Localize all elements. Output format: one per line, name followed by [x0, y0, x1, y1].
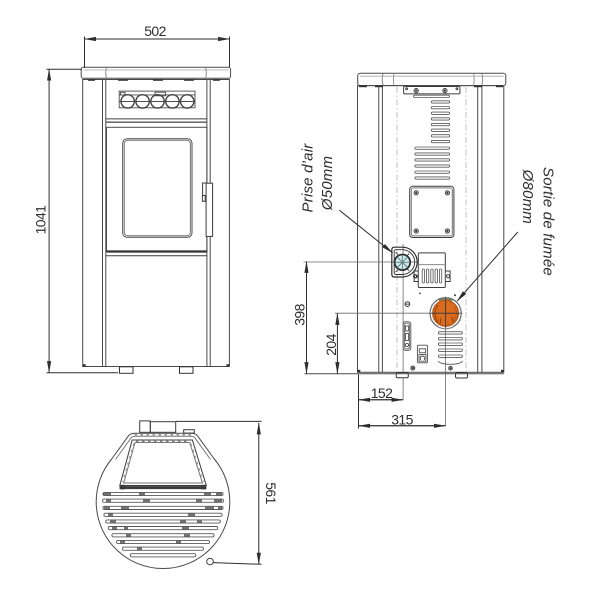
svg-text:204: 204: [323, 333, 339, 355]
svg-text:Ø50mm: Ø50mm: [319, 156, 336, 211]
svg-text:561: 561: [263, 482, 279, 504]
svg-text:315: 315: [391, 411, 413, 427]
svg-text:1041: 1041: [33, 205, 49, 235]
svg-text:Ø80mm: Ø80mm: [519, 169, 536, 224]
svg-text:502: 502: [144, 23, 166, 39]
svg-text:Prise d’air: Prise d’air: [300, 143, 317, 213]
svg-text:398: 398: [292, 303, 308, 325]
svg-text:Sortie de fumée: Sortie de fumée: [539, 167, 556, 276]
svg-text:152: 152: [371, 385, 393, 401]
